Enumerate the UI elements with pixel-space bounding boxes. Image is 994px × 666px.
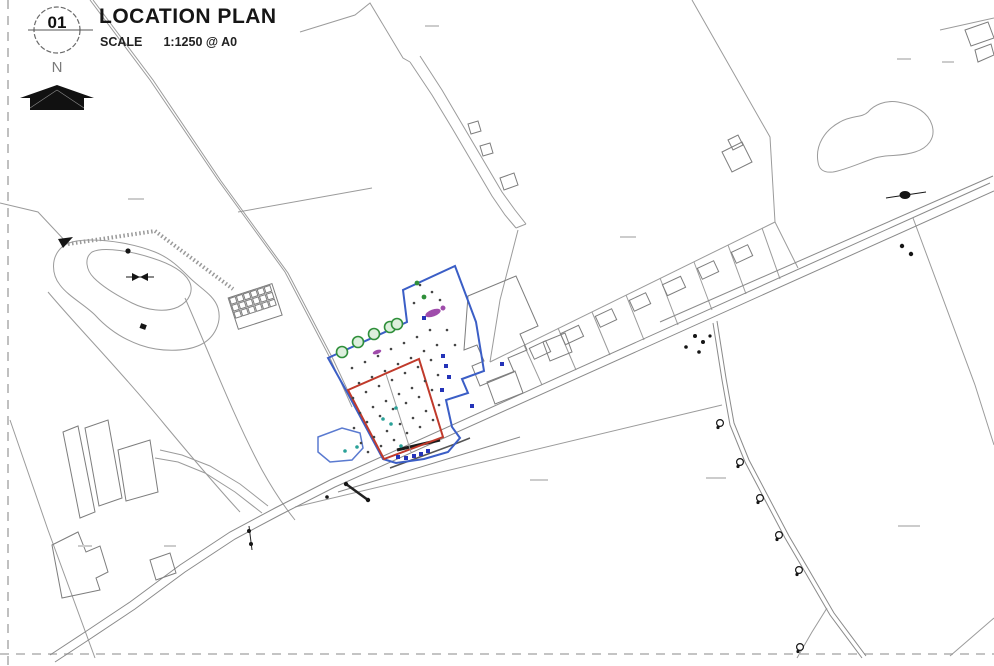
neighbour-buildings	[464, 276, 572, 404]
survey-point	[417, 366, 420, 369]
survey-point	[437, 374, 440, 377]
blue-marker	[404, 456, 408, 460]
survey-point	[404, 372, 407, 375]
teal-marker	[399, 444, 403, 448]
teal-marker	[389, 422, 393, 426]
survey-point	[364, 361, 367, 364]
utility-pole-icon	[796, 644, 803, 654]
survey-point	[373, 436, 376, 439]
survey-point	[352, 397, 355, 400]
survey-point	[385, 400, 388, 403]
blue-marker	[444, 364, 448, 368]
survey-point	[380, 445, 383, 448]
survey-point	[399, 423, 402, 426]
blue-marker	[419, 452, 423, 456]
tree-icon	[337, 347, 348, 358]
survey-point	[371, 376, 374, 379]
trees	[337, 319, 403, 358]
survey-point	[431, 389, 434, 392]
survey-point	[423, 350, 426, 353]
main-road	[50, 176, 994, 662]
survey-point	[425, 410, 428, 413]
farm-lane	[155, 450, 268, 513]
strip-parcel	[410, 56, 526, 228]
tree-icon	[369, 329, 380, 340]
survey-point	[412, 417, 415, 420]
utility-pole-icon	[795, 567, 802, 577]
magenta-marker	[372, 349, 382, 356]
survey-point	[390, 348, 393, 351]
roadside-houses	[529, 245, 752, 359]
survey-markers	[343, 281, 504, 460]
scale-label: SCALE	[100, 35, 160, 49]
blue-marker	[396, 455, 400, 459]
moth-symbol-icon	[132, 273, 140, 281]
teal-marker	[355, 445, 359, 449]
survey-point	[418, 396, 421, 399]
green-marker	[415, 281, 420, 286]
survey-point	[436, 344, 439, 347]
survey-point	[410, 357, 413, 360]
green-marker	[422, 295, 427, 300]
survey-point	[392, 408, 395, 411]
survey-point	[365, 391, 368, 394]
survey-point	[393, 439, 396, 442]
field-boundaries	[0, 0, 994, 658]
survey-point	[391, 379, 394, 382]
farm-track	[713, 321, 866, 658]
survey-point	[366, 421, 369, 424]
scale-row: SCALE 1:1250 @ A0	[100, 35, 237, 49]
survey-point	[359, 412, 362, 415]
teal-marker	[394, 406, 398, 410]
survey-point	[397, 363, 400, 366]
blue-marker	[441, 354, 445, 358]
greenhouse-building	[228, 284, 282, 330]
tree-icon	[392, 319, 403, 330]
magenta-marker	[424, 307, 441, 319]
northeast-features	[722, 18, 994, 172]
blue-marker	[447, 375, 451, 379]
detail-number: 01	[34, 13, 80, 33]
magenta-marker	[440, 305, 446, 311]
blue-marker	[500, 362, 504, 366]
survey-point	[372, 406, 375, 409]
north-arrow-icon	[20, 85, 94, 110]
teal-marker	[343, 449, 347, 453]
survey-point	[398, 393, 401, 396]
survey-point	[429, 329, 432, 332]
survey-point	[439, 299, 442, 302]
survey-point	[411, 387, 414, 390]
utility-pole-icon	[756, 495, 763, 505]
scale-value: 1:1250 @ A0	[163, 35, 237, 49]
blue-marker	[470, 404, 474, 408]
location-plan-map	[0, 0, 994, 666]
survey-point	[419, 426, 422, 429]
survey-point	[430, 359, 433, 362]
survey-point	[431, 291, 434, 294]
utility-poles	[716, 420, 803, 654]
pond-outline	[318, 428, 363, 462]
survey-point	[405, 402, 408, 405]
survey-point	[360, 442, 363, 445]
survey-point	[454, 344, 457, 347]
teal-marker	[381, 417, 385, 421]
utility-pole-icon	[736, 459, 743, 469]
blue-marker	[426, 449, 430, 453]
site-boundary	[318, 266, 484, 463]
utility-pole-icon	[775, 532, 782, 542]
page-border	[0, 0, 994, 666]
utility-pole-icon	[716, 420, 723, 430]
survey-point	[424, 380, 427, 383]
blue-marker	[440, 388, 444, 392]
survey-point	[358, 382, 361, 385]
survey-point	[446, 329, 449, 332]
survey-point	[384, 370, 387, 373]
page-title: LOCATION PLAN	[99, 5, 277, 29]
tree-icon	[353, 337, 364, 348]
survey-point	[353, 427, 356, 430]
survey-point	[413, 302, 416, 305]
survey-point	[406, 432, 409, 435]
survey-point	[403, 342, 406, 345]
pump-icon	[900, 191, 911, 199]
survey-point	[432, 419, 435, 422]
survey-point	[378, 385, 381, 388]
survey-point	[379, 415, 382, 418]
survey-point	[351, 367, 354, 370]
blue-marker	[422, 316, 426, 320]
illegible-labels	[78, 26, 954, 546]
survey-point	[386, 430, 389, 433]
drawing-sheet: 01 LOCATION PLAN SCALE 1:1250 @ A0 N	[0, 0, 994, 666]
north-label: N	[44, 59, 70, 76]
survey-point	[377, 355, 380, 358]
blue-marker	[412, 454, 416, 458]
farm-buildings	[52, 420, 176, 598]
survey-point	[367, 451, 370, 454]
map-symbols	[58, 191, 926, 550]
survey-point	[438, 404, 441, 407]
copse-pond	[54, 231, 234, 350]
survey-point	[416, 336, 419, 339]
